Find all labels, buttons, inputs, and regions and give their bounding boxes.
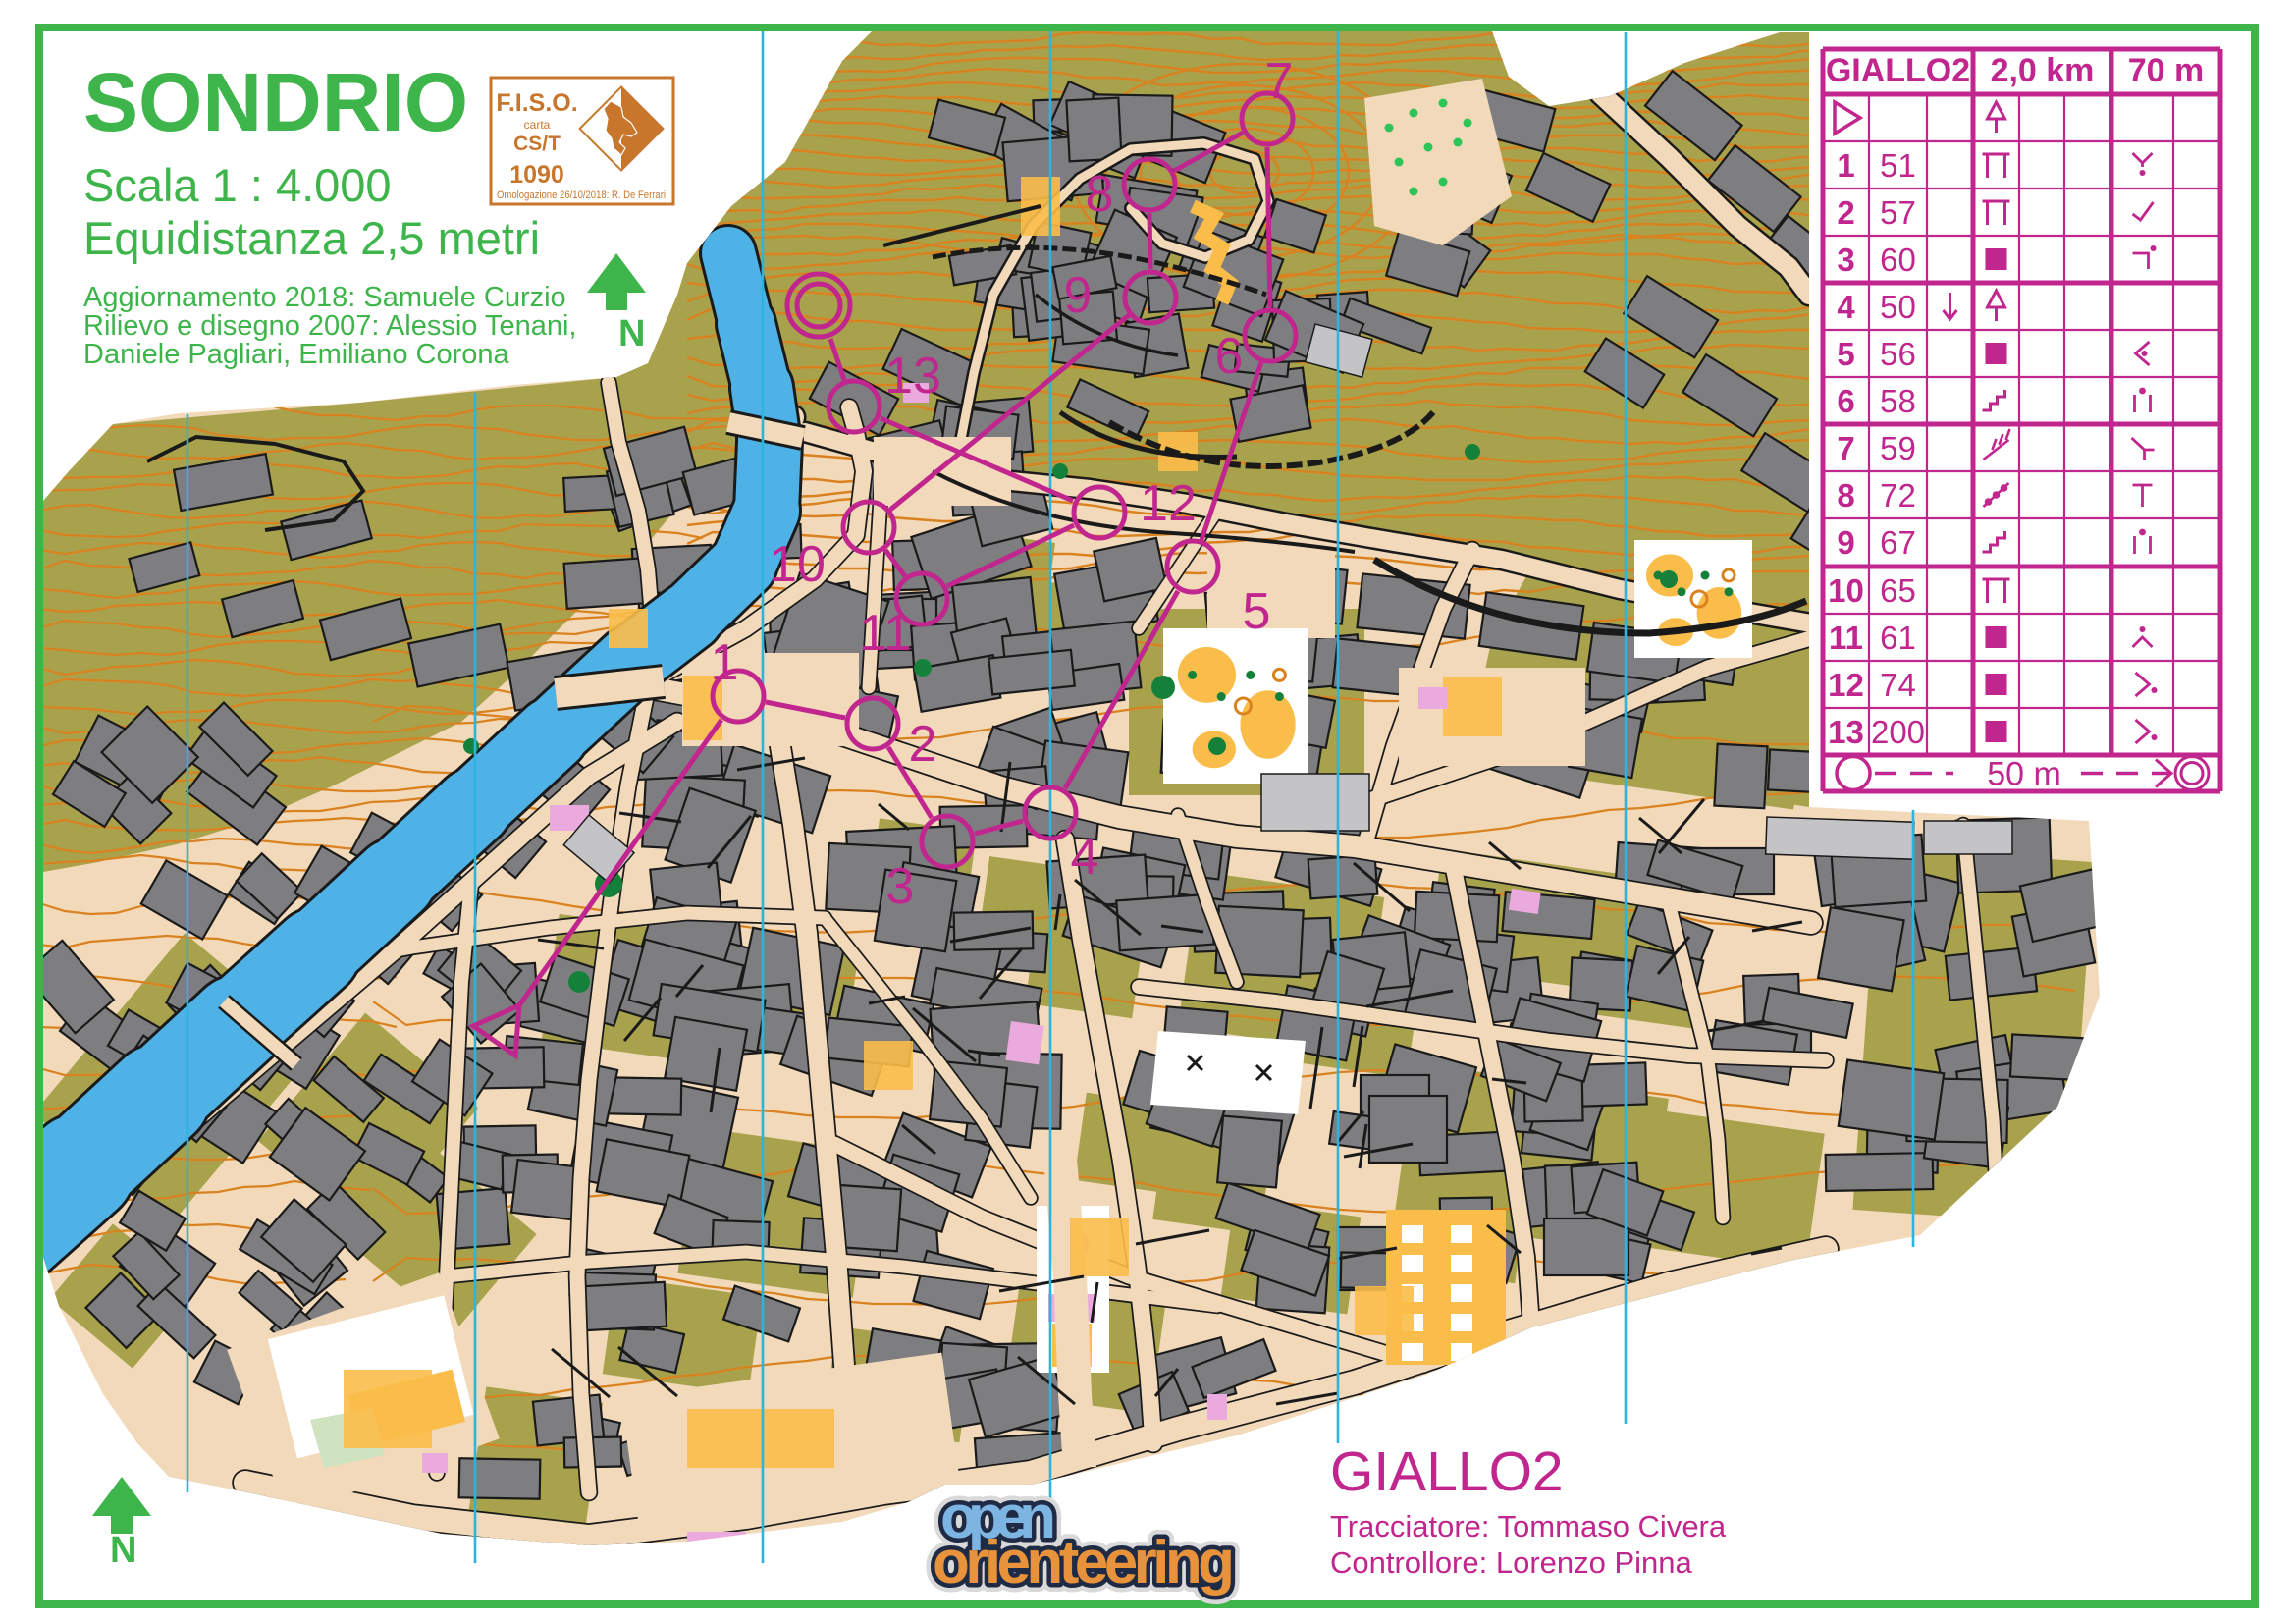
svg-text:56: 56 bbox=[1880, 336, 1916, 372]
svg-text:12: 12 bbox=[1140, 475, 1197, 532]
svg-text:13: 13 bbox=[1828, 714, 1864, 750]
svg-text:N: N bbox=[618, 313, 645, 354]
svg-text:N: N bbox=[110, 1530, 136, 1571]
svg-text:carta: carta bbox=[524, 118, 551, 132]
svg-text:67: 67 bbox=[1880, 524, 1916, 561]
svg-text:74: 74 bbox=[1880, 667, 1916, 703]
svg-text:7: 7 bbox=[1265, 53, 1294, 110]
svg-text:50: 50 bbox=[1880, 289, 1916, 325]
svg-text:61: 61 bbox=[1880, 620, 1916, 656]
svg-text:5: 5 bbox=[1243, 583, 1271, 640]
svg-text:59: 59 bbox=[1880, 430, 1916, 466]
svg-text:Aggiornamento 2018: Samuele Cu: Aggiornamento 2018: Samuele Curzio bbox=[83, 282, 566, 313]
svg-text:6: 6 bbox=[1215, 328, 1244, 385]
svg-text:72: 72 bbox=[1880, 477, 1916, 514]
svg-text:60: 60 bbox=[1880, 242, 1916, 278]
svg-text:Scala 1 : 4.000: Scala 1 : 4.000 bbox=[83, 159, 392, 211]
svg-text:11: 11 bbox=[859, 605, 912, 662]
svg-text:7: 7 bbox=[1837, 430, 1854, 466]
svg-text:CS/T: CS/T bbox=[513, 133, 561, 155]
svg-text:65: 65 bbox=[1880, 572, 1916, 609]
svg-text:10: 10 bbox=[769, 536, 826, 593]
svg-text:2: 2 bbox=[909, 716, 937, 773]
svg-text:Rilievo e disegno 2007: Alessi: Rilievo e disegno 2007: Alessio Tenani, bbox=[83, 310, 576, 342]
svg-text:Omologazione 26/10/2018: R. De: Omologazione 26/10/2018: R. De Ferrari bbox=[497, 189, 666, 201]
svg-text:70 m: 70 m bbox=[2128, 52, 2205, 89]
svg-text:57: 57 bbox=[1880, 194, 1916, 231]
svg-text:8: 8 bbox=[1837, 477, 1854, 514]
svg-text:8: 8 bbox=[1086, 166, 1114, 223]
svg-text:F.I.S.O.: F.I.S.O. bbox=[496, 89, 577, 117]
svg-text:4: 4 bbox=[1071, 829, 1099, 886]
svg-text:SONDRIO: SONDRIO bbox=[83, 56, 468, 148]
svg-text:9: 9 bbox=[1064, 267, 1093, 324]
svg-text:2: 2 bbox=[1837, 194, 1854, 231]
svg-text:3: 3 bbox=[886, 858, 915, 915]
svg-text:Equidistanza 2,5 metri: Equidistanza 2,5 metri bbox=[83, 212, 540, 264]
svg-text:GIALLO2: GIALLO2 bbox=[1826, 52, 1970, 89]
svg-text:10: 10 bbox=[1828, 572, 1864, 609]
svg-text:GIALLO2: GIALLO2 bbox=[1330, 1440, 1564, 1503]
svg-text:51: 51 bbox=[1880, 147, 1916, 184]
svg-text:13: 13 bbox=[884, 348, 941, 405]
svg-text:50 m: 50 m bbox=[1987, 756, 2061, 793]
svg-text:Daniele Pagliari, Emiliano Cor: Daniele Pagliari, Emiliano Corona bbox=[83, 339, 509, 370]
svg-text:1: 1 bbox=[711, 634, 739, 691]
svg-text:11: 11 bbox=[1829, 620, 1863, 656]
svg-text:Controllore: Lorenzo Pinna: Controllore: Lorenzo Pinna bbox=[1330, 1545, 1693, 1580]
svg-text:1: 1 bbox=[1837, 147, 1854, 184]
svg-text:12: 12 bbox=[1828, 667, 1864, 703]
svg-text:6: 6 bbox=[1837, 383, 1854, 419]
svg-text:9: 9 bbox=[1837, 524, 1854, 561]
svg-text:Tracciatore: Tommaso Civera: Tracciatore: Tommaso Civera bbox=[1330, 1509, 1727, 1543]
svg-text:1090: 1090 bbox=[509, 161, 564, 189]
svg-text:5: 5 bbox=[1837, 336, 1854, 372]
svg-text:2,0 km: 2,0 km bbox=[1991, 52, 2095, 89]
svg-text:58: 58 bbox=[1880, 383, 1916, 419]
svg-text:4: 4 bbox=[1837, 289, 1855, 325]
svg-text:200: 200 bbox=[1871, 714, 1925, 750]
svg-text:3: 3 bbox=[1837, 242, 1854, 278]
svg-text:orienteering: orienteering bbox=[933, 1529, 1235, 1597]
